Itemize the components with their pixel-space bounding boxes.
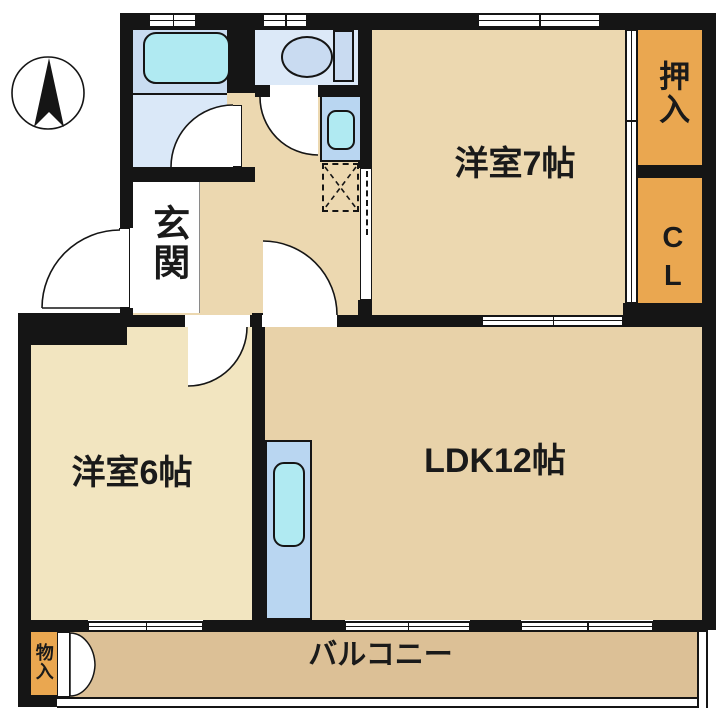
west6-door-swing (188, 327, 247, 386)
label-western-room-7: 洋室7帖 (420, 146, 610, 183)
label-entrance: 玄関 (147, 204, 188, 282)
washer-pan-cross (325, 167, 356, 208)
label-balcony: バルコニー (288, 640, 473, 672)
ldk-door-swing (263, 241, 337, 315)
plan-overlay (0, 0, 720, 714)
label-western-room-6: 洋室6帖 (38, 455, 226, 492)
label-oshiire: 押入 (654, 60, 688, 126)
floorplan: 洋室7帖 洋室6帖 LDK12帖 バルコニー 玄関 押入 CL 物入 (0, 0, 720, 714)
compass-north-icon (12, 57, 84, 129)
toilet-door-swing (260, 97, 318, 155)
storage-door-swing (70, 633, 95, 696)
front-door-swing (42, 230, 120, 308)
bathroom-door-swing (171, 105, 233, 167)
label-storage: 物入 (33, 643, 53, 681)
label-cl: CL (656, 222, 688, 298)
label-ldk: LDK12帖 (400, 443, 590, 480)
